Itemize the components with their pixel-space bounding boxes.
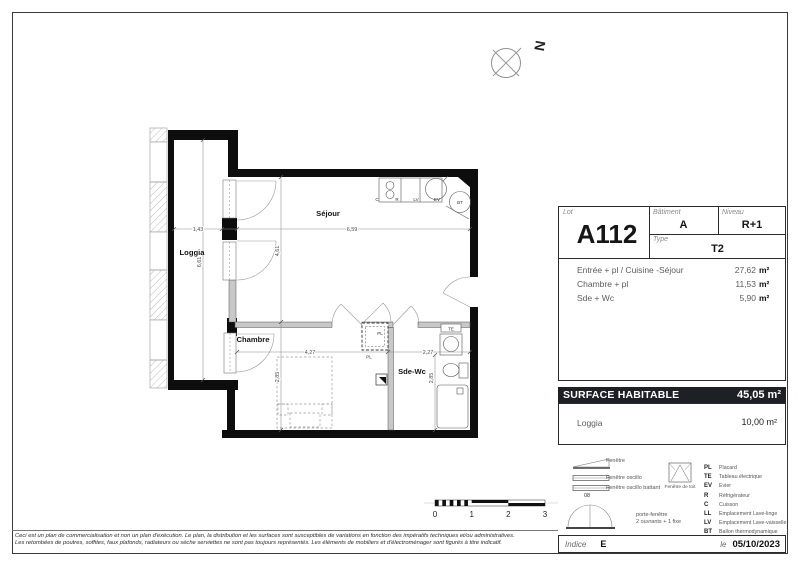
niveau-label: Niveau xyxy=(722,209,744,216)
area-row: Entrée + pl / Cuisine -Séjour 27,62 m² xyxy=(559,265,779,278)
scale-tick-1: 1 xyxy=(469,510,474,519)
room-label-chambre: Chambre xyxy=(237,335,270,344)
shower-drain xyxy=(457,388,463,394)
dim-chambre-width: 4,27 xyxy=(305,350,316,356)
loggia-area-value: 10,00 m² xyxy=(741,417,777,427)
legend-porte-fenetre-label: porte-fenêtre xyxy=(636,512,668,518)
scale-tick-2: 2 xyxy=(506,510,511,519)
bathroom-fixtures xyxy=(437,324,468,428)
area-value: 11,53 xyxy=(720,279,756,292)
compass-icon: N xyxy=(492,39,549,77)
area-value: 27,62 xyxy=(720,265,756,278)
batiment-label: Bâtiment xyxy=(653,209,681,216)
wc-bowl-icon xyxy=(443,364,459,377)
lot-info-box: Lot A112 Bâtiment A Niveau R+1 Type T2 E… xyxy=(558,206,786,381)
legend-fenetre-label: Fenêtre xyxy=(606,458,625,464)
niveau-value: R+1 xyxy=(718,219,786,231)
legend-oscillo-label: Fenêtre oscillo xyxy=(606,475,642,481)
legend-oscillo-code: 08 xyxy=(584,493,590,499)
tag-tableau-electrique: TE xyxy=(448,327,454,332)
shower-tray xyxy=(437,385,468,428)
dim-loggia-height: 6,61 xyxy=(197,257,203,268)
scale-tick-3: 3 xyxy=(543,510,548,519)
date-value: 05/10/2023 xyxy=(732,539,780,550)
loggia-facade-panels xyxy=(150,128,167,388)
area-unit: m² xyxy=(756,279,779,292)
technical-box xyxy=(376,374,387,385)
legend-roof-window-label: Fenêtre de toit xyxy=(656,485,704,490)
dim-chambre-height: 2,85 xyxy=(275,372,281,383)
door-swings xyxy=(236,181,470,372)
loggia-area-box: Loggia 10,00 m² xyxy=(558,403,786,445)
divider xyxy=(649,234,786,235)
area-unit: m² xyxy=(756,293,779,306)
area-value: 5,90 xyxy=(720,293,756,306)
indice-value: E xyxy=(600,539,606,549)
plan-sheet: N xyxy=(0,0,799,565)
dim-loggia-width: 1,43 xyxy=(193,227,204,233)
area-label: Sde + Wc xyxy=(577,293,720,306)
kitchen-counter xyxy=(379,176,471,213)
surface-habitable-label: SURFACE HABITABLE xyxy=(563,389,679,401)
cooktop-burner xyxy=(386,191,394,199)
type-label: Type xyxy=(653,236,668,243)
area-label: Chambre + pl xyxy=(577,279,720,292)
area-row: Sde + Wc 5,90 m² xyxy=(559,293,779,306)
dim-sejour-width: 6,59 xyxy=(347,227,358,233)
dim-sejour-height: 4,61 xyxy=(275,246,281,257)
indice-label: Indice xyxy=(565,540,586,549)
exterior-walls xyxy=(168,130,478,438)
disclaimer: Ceci est un plan de commercialisation et… xyxy=(15,533,555,547)
tag-lave-vaisselle: LV xyxy=(413,197,419,202)
divider xyxy=(559,258,786,259)
footer-divider xyxy=(12,530,558,531)
floor-plan: N xyxy=(0,0,560,565)
tag-refrigerateur: R xyxy=(395,197,399,202)
disclaimer-line-2: Les retombées de poutres, soffites, faux… xyxy=(15,540,555,547)
scale-bar: 0 1 2 3 xyxy=(424,500,558,519)
lot-label: Lot xyxy=(563,209,573,216)
date-prefix: le xyxy=(720,540,726,549)
tag-evier: EV xyxy=(434,197,441,202)
title-block: Lot A112 Bâtiment A Niveau R+1 Type T2 E… xyxy=(558,206,786,553)
cooktop-burner xyxy=(386,182,394,190)
surface-habitable-bar: SURFACE HABITABLE 45,05 m² xyxy=(558,387,786,403)
tag-placard-closet: PL xyxy=(377,331,383,336)
room-label-sejour: Séjour xyxy=(316,209,340,218)
area-unit: m² xyxy=(756,265,779,278)
dim-sdewc-height: 2,85 xyxy=(429,373,435,384)
wc-tank xyxy=(459,363,468,378)
tag-ballon: BT xyxy=(457,200,463,205)
tag-placard-chambre: PL xyxy=(366,355,372,360)
closet-placard: PL PL xyxy=(362,323,388,360)
scale-tick-0: 0 xyxy=(433,510,438,519)
interior-partitions xyxy=(229,280,470,430)
area-row: Chambre + pl 11,53 m² xyxy=(559,279,779,292)
windows xyxy=(223,180,236,373)
roof-window-symbol-icon xyxy=(666,462,694,484)
surface-habitable-value: 45,05 m² xyxy=(737,389,781,401)
loggia-area-label: Loggia xyxy=(577,418,603,428)
disclaimer-line-1: Ceci est un plan de commercialisation et… xyxy=(15,533,555,540)
type-value: T2 xyxy=(649,243,786,255)
dim-sdewc-width: 2,27 xyxy=(423,350,434,356)
revision-row: Indice E le 05/10/2023 xyxy=(558,535,786,553)
bed-furniture xyxy=(277,357,332,428)
legend-oscillo-battant-label: Fenêtre oscillo battant xyxy=(606,485,660,491)
legend: Fenêtre Fenêtre oscillo Fenêtre oscillo … xyxy=(558,450,786,534)
lot-number: A112 xyxy=(565,219,649,250)
compass-north-label: N xyxy=(531,39,549,52)
room-label-sdewc: Sde-Wc xyxy=(398,367,426,376)
area-label: Entrée + pl / Cuisine -Séjour xyxy=(577,265,720,278)
porte-fenetre-symbol-icon xyxy=(566,502,618,532)
room-label-loggia: Loggia xyxy=(180,248,206,257)
legend-porte-fenetre-detail: 2 ouvrants + 1 fixe xyxy=(636,519,681,525)
batiment-value: A xyxy=(649,219,718,231)
